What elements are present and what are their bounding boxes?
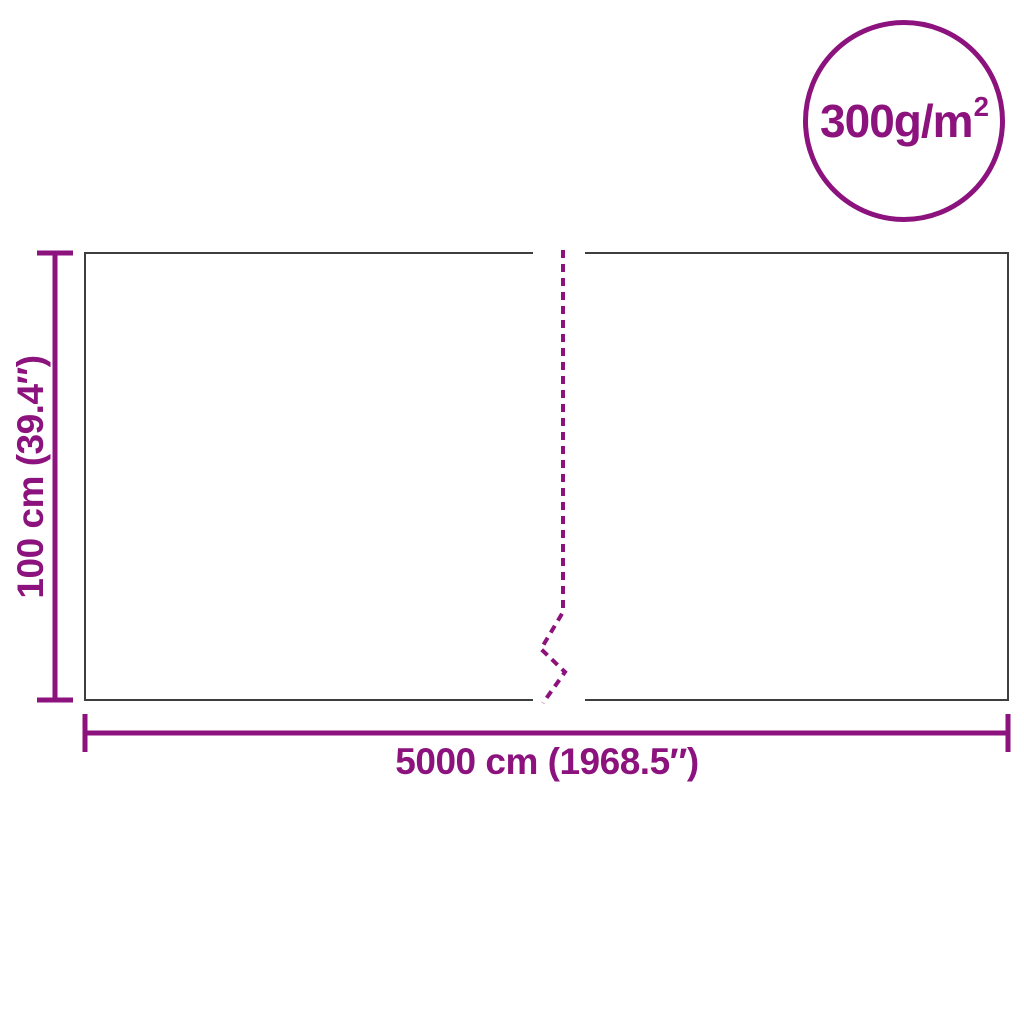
product-dimension-diagram: 300g/m2 100 cm (39.4″) 5000 cm (1968.5″) xyxy=(0,0,1024,1024)
weight-badge-label: 300g/m xyxy=(820,94,973,148)
weight-badge: 300g/m2 xyxy=(803,20,1005,222)
tarp-outline-left-half xyxy=(85,253,533,700)
height-dimension-label: 100 cm (39.4″) xyxy=(10,355,52,598)
tarp-outline-right-half xyxy=(585,253,1008,700)
width-dimension-label: 5000 cm (1968.5″) xyxy=(395,741,698,783)
fold-break-dashed-line xyxy=(541,250,565,703)
